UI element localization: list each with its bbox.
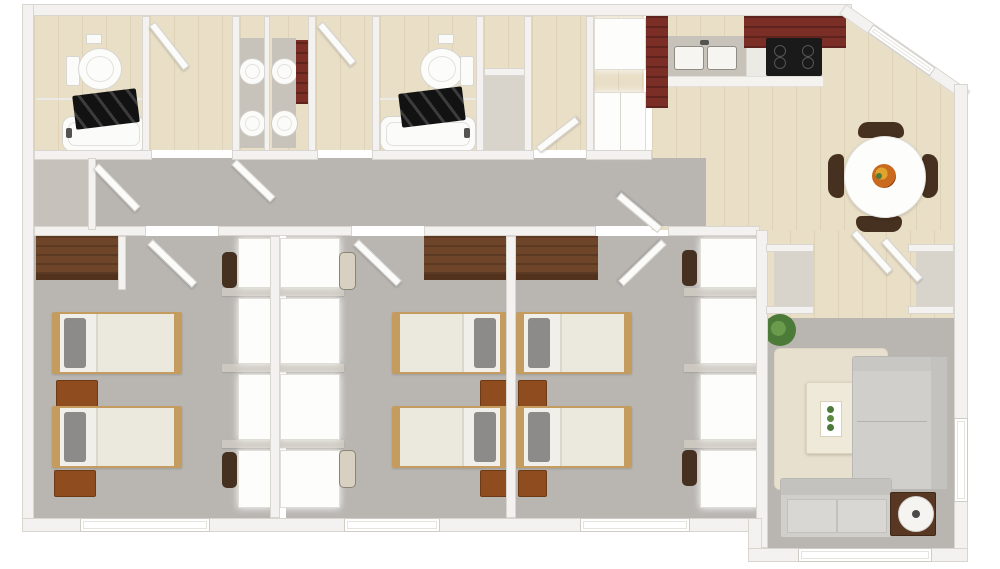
- utility-cabinet: [594, 18, 646, 70]
- desk-shelf: [684, 364, 756, 372]
- wall: [264, 16, 270, 152]
- vanity-tall-cabinet: [296, 40, 308, 104]
- potted-plant-icon: [764, 314, 796, 346]
- toilet-paper-holder: [438, 34, 454, 44]
- wall: [484, 68, 528, 76]
- desk-unit: [700, 374, 758, 440]
- wall: [476, 16, 484, 152]
- bedroom2-window: [344, 518, 440, 532]
- desk-shelf: [222, 364, 344, 372]
- desk-unit: [280, 238, 340, 288]
- kitchen-faucet: [700, 40, 709, 45]
- desk-unit: [700, 450, 758, 508]
- bedroom3-wardrobe-shelf: [516, 236, 598, 274]
- desk-chair: [682, 450, 697, 486]
- floor-plan-canvas: [0, 0, 1000, 569]
- wall: [506, 236, 516, 518]
- wall: [232, 16, 240, 152]
- entry-closet-right-floor: [916, 252, 954, 306]
- nightstand: [518, 470, 547, 497]
- kitchen-cabinet-left: [646, 14, 668, 108]
- kitchen-sink-basin: [707, 46, 737, 70]
- twin-bed: [516, 312, 632, 374]
- nightstand: [518, 380, 547, 407]
- living-room-bottom-window: [798, 548, 932, 562]
- desk-chair: [222, 252, 237, 288]
- hall-closet-floor: [34, 158, 88, 230]
- wall: [232, 150, 318, 160]
- desk-shelf: [684, 440, 756, 448]
- desk-chair: [339, 450, 356, 488]
- desk-unit: [238, 238, 272, 288]
- stove-cooktop: [766, 38, 822, 76]
- twin-bed: [516, 406, 632, 468]
- dining-chair: [856, 216, 902, 232]
- entry-closet-left-floor: [774, 252, 814, 306]
- succulent-tray-icon: [820, 401, 842, 437]
- hallway-floor: [92, 158, 706, 226]
- exterior-wall-top: [22, 4, 852, 16]
- desk-shelf: [222, 440, 344, 448]
- wall: [908, 244, 954, 252]
- desk-chair: [682, 250, 697, 286]
- nightstand: [54, 470, 96, 497]
- nightstand: [480, 380, 509, 407]
- wall: [756, 230, 768, 548]
- dining-chair: [828, 154, 844, 198]
- toilet-icon: [420, 48, 464, 90]
- wall: [908, 306, 954, 314]
- wall: [372, 150, 534, 160]
- desk-unit: [280, 374, 340, 440]
- tub-faucet: [464, 128, 470, 138]
- sink-basin: [239, 58, 266, 85]
- wall: [118, 236, 126, 290]
- wall: [586, 150, 652, 160]
- desk-chair: [222, 452, 237, 488]
- linen-closet-floor: [484, 76, 524, 150]
- coffee-table: [806, 382, 854, 454]
- bedroom2-wardrobe-shelf: [424, 236, 506, 274]
- nightstand: [480, 470, 509, 497]
- toilet-tank: [460, 56, 474, 86]
- bedroom1-window: [80, 518, 210, 532]
- desk-shelf: [684, 288, 756, 296]
- loveseat-sofa: [780, 478, 892, 538]
- desk-chair: [339, 252, 356, 290]
- desk-unit: [700, 298, 758, 364]
- toilet-paper-holder: [86, 34, 102, 44]
- wall: [668, 226, 760, 236]
- wall: [524, 16, 532, 152]
- desk-unit: [280, 450, 340, 508]
- bedroom3-window: [580, 518, 690, 532]
- twin-bed: [52, 312, 182, 374]
- kitchen-sink-basin: [674, 46, 704, 70]
- wall: [218, 226, 352, 236]
- wall: [424, 226, 596, 236]
- twin-bed: [392, 406, 508, 468]
- sectional-sofa: [852, 356, 948, 490]
- sink-basin: [271, 58, 298, 85]
- sink-basin: [239, 110, 266, 137]
- wall: [308, 16, 316, 152]
- desk-unit: [238, 298, 272, 364]
- twin-bed: [392, 312, 508, 374]
- desk-unit: [238, 450, 272, 508]
- desk-unit: [280, 298, 340, 364]
- wall: [586, 16, 594, 152]
- round-lamp-icon: [898, 496, 934, 532]
- bedroom1-wardrobe-shelf: [36, 236, 118, 274]
- wall: [766, 306, 814, 314]
- fruit-bowl-icon: [872, 164, 896, 188]
- kitchen-cabinet-front-strip: [666, 76, 824, 87]
- wall: [270, 236, 280, 518]
- wall: [372, 16, 380, 152]
- linen-closet-upper-floor: [484, 16, 524, 72]
- living-room-right-window: [954, 418, 968, 502]
- twin-bed: [52, 406, 182, 468]
- desk-shelf: [222, 288, 344, 296]
- toilet-icon: [78, 48, 122, 90]
- desk-unit: [700, 238, 758, 288]
- wall: [142, 16, 150, 152]
- sink-basin: [271, 110, 298, 137]
- desk-unit: [238, 374, 272, 440]
- refrigerator-icon: [594, 92, 646, 154]
- tub-faucet: [66, 128, 72, 138]
- wall: [766, 244, 814, 252]
- exterior-wall-left: [22, 4, 34, 532]
- nightstand: [56, 380, 98, 407]
